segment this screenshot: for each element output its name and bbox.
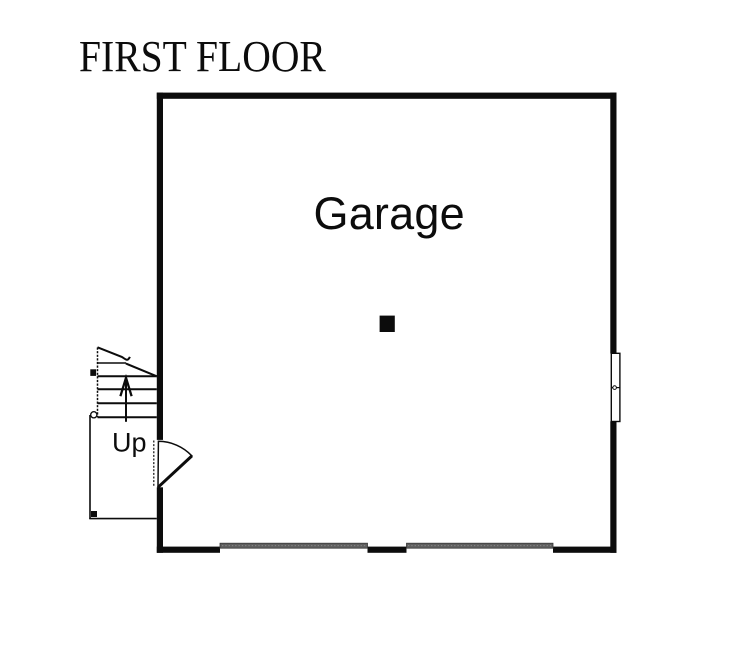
- svg-text:Up: Up: [112, 428, 147, 458]
- svg-text:Garage: Garage: [314, 188, 465, 239]
